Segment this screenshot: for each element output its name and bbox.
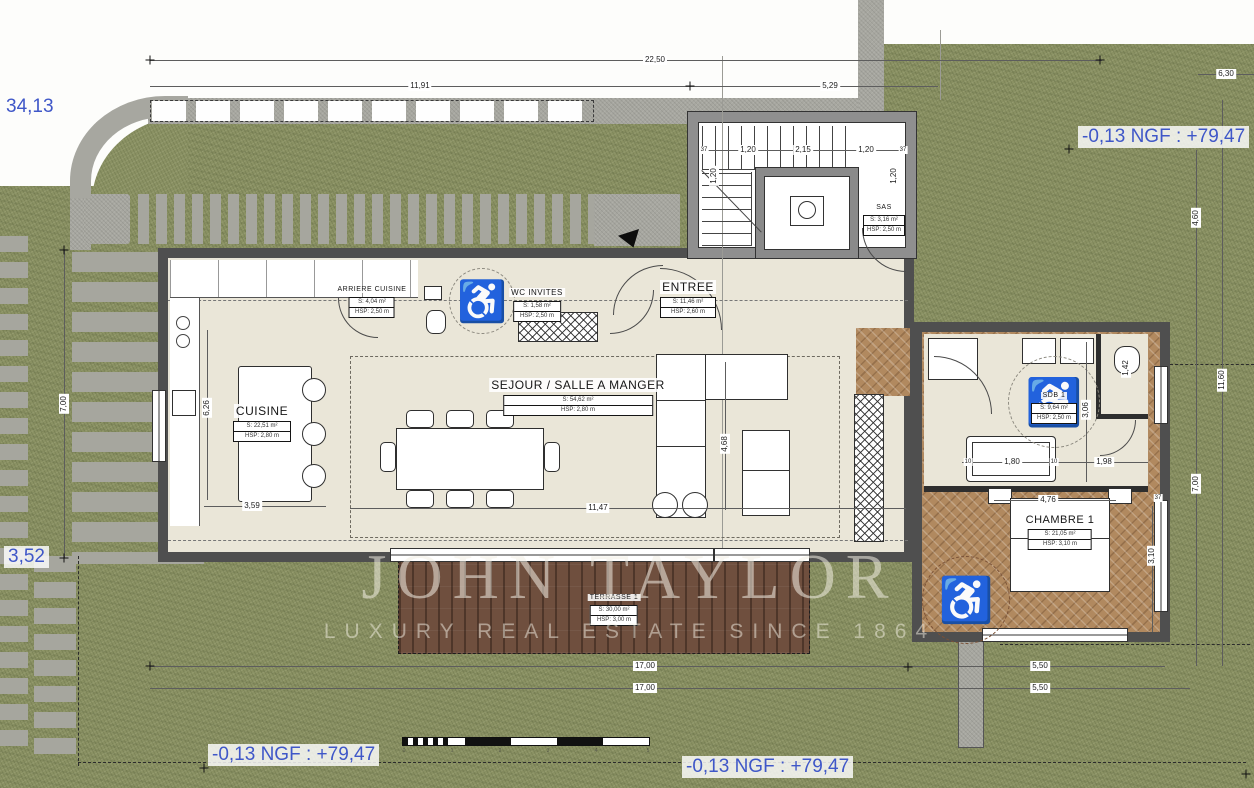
stair-treads-top [702, 126, 850, 170]
wheelchair-icon: ♿ [939, 574, 994, 626]
dim-label: 1,20 [889, 166, 899, 186]
hallway-wood-floor [856, 328, 910, 396]
accessibility-circle-wc: ♿ [449, 268, 515, 334]
dim-label: 1,42 [1121, 358, 1131, 378]
room-name: WC INVITES [509, 288, 565, 297]
garden-walkway [958, 636, 984, 748]
dim-label: 1,20 [709, 166, 719, 186]
dim-tick [904, 663, 913, 672]
dim-tick [60, 554, 69, 563]
road-vertical-right [858, 0, 884, 124]
dim-label: 17,00 [633, 661, 657, 671]
dim-line-top-right [690, 86, 938, 87]
sofa-cushion-line [656, 446, 706, 447]
scale-tick: 3 [547, 748, 550, 754]
elevator-symbol [798, 201, 816, 219]
room-hsp: HSP: 2,50 m [350, 308, 394, 317]
dim-label: 1,20 [856, 145, 876, 155]
dim-label: 22,50 [643, 55, 667, 65]
parking-strip-row [138, 194, 594, 244]
scale-tick: 4 [595, 748, 598, 754]
dim-label: 10 [1050, 458, 1059, 466]
dim-label: 10 [964, 458, 973, 466]
room-name: SEJOUR / SALLE A MANGER [489, 378, 667, 392]
dining-table [396, 428, 544, 490]
dim-label: 11,60 [1217, 368, 1227, 391]
dim-line-living-width [350, 508, 906, 509]
window-bathroom-east [1154, 366, 1168, 424]
watermark-brand: JOHN TAYLOR [362, 540, 899, 614]
tv-shelf-wall [854, 394, 884, 542]
floor-plan-canvas: ♿ ♿ ♿ CUISINE S: 22,51 m²HSP: 2,80 m SEJ… [0, 0, 1254, 788]
dim-label: 37 [899, 146, 908, 154]
dim-line-bedroom-depth [1152, 506, 1153, 632]
scale-tick: 5 [647, 748, 650, 754]
dining-chair [446, 410, 474, 428]
dim-label: 3,06 [1081, 400, 1091, 420]
room-label-chambre1: CHAMBRE 1 S: 21,05 m²HSP: 3,10 m [1024, 510, 1097, 550]
armchair-line [742, 470, 790, 471]
dim-label: 37 [700, 146, 709, 154]
room-name: ENTREE [660, 280, 716, 294]
room-label-cuisine: CUISINE S: 22,51 m²HSP: 2,80 m [233, 402, 291, 442]
elevation-label-curve: 34,13 [2, 96, 58, 118]
room-label-arriere-cuisine: ARRIERE CUISINE S: 4,04 m²HSP: 2,50 m [336, 278, 409, 318]
island-stool-3 [302, 464, 326, 488]
road-paving-outline [150, 100, 594, 122]
elevation-label-left: 3,52 [4, 546, 49, 568]
dim-tick [1096, 56, 1105, 65]
parking-slab-large-left [84, 194, 130, 244]
wc-room-wall-south [1096, 414, 1148, 419]
room-area: S: 1,58 m² [514, 302, 560, 312]
dim-label: 7,00 [59, 394, 69, 414]
room-hsp: HSP: 3,10 m [1029, 540, 1091, 549]
nightstand-left [988, 488, 1012, 504]
window-bedroom-south [982, 628, 1128, 642]
dim-label: 2,15 [793, 145, 813, 155]
dining-chair-end-right [544, 442, 560, 472]
axis-line-right [940, 30, 941, 100]
dim-label: 37 [1154, 494, 1163, 502]
property-line-right-low [1000, 644, 1250, 645]
property-line-left [78, 556, 79, 766]
room-name: CUISINE [234, 404, 290, 418]
dim-label: 6,26 [202, 398, 212, 418]
scale-tick: 0 [403, 748, 406, 754]
nightstand-right [1108, 488, 1132, 504]
room-area: S: 4,04 m² [350, 298, 394, 308]
room-label-wc-invites: WC INVITES S: 1,58 m²HSP: 2,50 m [509, 282, 565, 322]
ngf-label-bottom-left: -0,13 NGF : +79,47 [208, 744, 379, 766]
scale-tick: 1 [451, 748, 454, 754]
island-stool-1 [302, 378, 326, 402]
toilet-wc-invites [426, 310, 446, 334]
ngf-label-top-right: -0,13 NGF : +79,47 [1078, 126, 1249, 148]
room-label-sas: SAS S: 3,16 m²HSP: 2,50 m [863, 196, 905, 236]
room-name: ARRIERE CUISINE [336, 286, 409, 293]
dim-label: 1,20 [738, 145, 758, 155]
room-hsp: HSP: 2,50 m [1032, 414, 1076, 423]
dim-label: 4,60 [1191, 208, 1201, 228]
kitchen-sink-1 [176, 316, 190, 330]
room-name: SDB 1 [1041, 392, 1068, 399]
dim-label: 3,10 [1147, 546, 1157, 566]
room-label-sejour: SEJOUR / SALLE A MANGER S: 54,62 m²HSP: … [489, 376, 667, 416]
dim-label: 6,30 [1216, 69, 1236, 79]
room-area: S: 21,05 m² [1029, 530, 1091, 540]
room-name: CHAMBRE 1 [1024, 514, 1097, 526]
dim-tick [1065, 145, 1074, 154]
room-area: S: 54,62 m² [504, 396, 652, 406]
room-area: S: 9,64 m² [1032, 404, 1076, 414]
dining-chair [406, 410, 434, 428]
room-name: SAS [874, 204, 894, 211]
dim-tick [146, 662, 155, 671]
scale-tick: 2 [499, 748, 502, 754]
property-line-right-mid [1170, 364, 1254, 365]
room-hsp: HSP: 2,80 m [504, 406, 652, 415]
room-area: S: 11,46 m² [661, 298, 715, 308]
dim-label: 3,59 [242, 501, 262, 511]
room-hsp: HSP: 2,80 m [234, 432, 290, 441]
dim-label: 1,98 [1094, 457, 1114, 467]
kitchen-sink-2 [176, 334, 190, 348]
dim-label: 1,80 [1002, 457, 1022, 467]
armchair [742, 430, 790, 516]
room-hsp: HSP: 2,50 m [864, 226, 904, 235]
dim-tick [1242, 770, 1251, 779]
room-hsp: HSP: 2,60 m [661, 308, 715, 317]
path-strip-column-lower [34, 556, 76, 756]
dim-line-bottom-1 [150, 666, 1165, 667]
room-label-sdb1: SDB 1 S: 9,64 m²HSP: 2,50 m [1031, 384, 1077, 424]
dim-label: 11,47 [586, 503, 609, 513]
dim-tick [146, 56, 155, 65]
boundary-strip-column [0, 236, 28, 748]
ngf-label-bottom-center: -0,13 NGF : +79,47 [682, 756, 853, 778]
room-hsp: HSP: 2,50 m [514, 312, 560, 321]
dining-chair [406, 490, 434, 508]
dim-label: 17,00 [633, 683, 657, 693]
room-area: S: 3,16 m² [864, 216, 904, 226]
dim-tick [686, 82, 695, 91]
dim-line-island [204, 506, 326, 507]
scale-bar [402, 737, 650, 746]
dim-tick [60, 246, 69, 255]
kitchen-appliance [172, 390, 196, 416]
dim-line-top-total [150, 60, 1102, 61]
room-label-entree: ENTREE S: 11,46 m²HSP: 2,60 m [660, 278, 716, 318]
dim-label: 5,29 [820, 81, 840, 91]
dining-chair [446, 490, 474, 508]
pouf-2 [682, 492, 708, 518]
dim-label: 5,50 [1030, 661, 1050, 671]
watermark-tagline: LUXURY REAL ESTATE SINCE 1864 [324, 620, 936, 644]
wheelchair-icon: ♿ [457, 278, 507, 325]
pouf-1 [652, 492, 678, 518]
dim-label: 4,76 [1038, 495, 1058, 505]
dim-label: 7,00 [1191, 474, 1201, 494]
dining-chair [486, 490, 514, 508]
room-area: S: 22,51 m² [234, 422, 290, 432]
island-stool-2 [302, 422, 326, 446]
basin-wc-invites [424, 286, 442, 300]
window-kitchen-west [152, 390, 166, 462]
dim-label: 5,50 [1030, 683, 1050, 693]
paper-area-top-right [882, 0, 1254, 44]
dim-label: 4,68 [720, 434, 730, 454]
dining-chair-end-left [380, 442, 396, 472]
dim-label: 11,91 [408, 81, 431, 91]
